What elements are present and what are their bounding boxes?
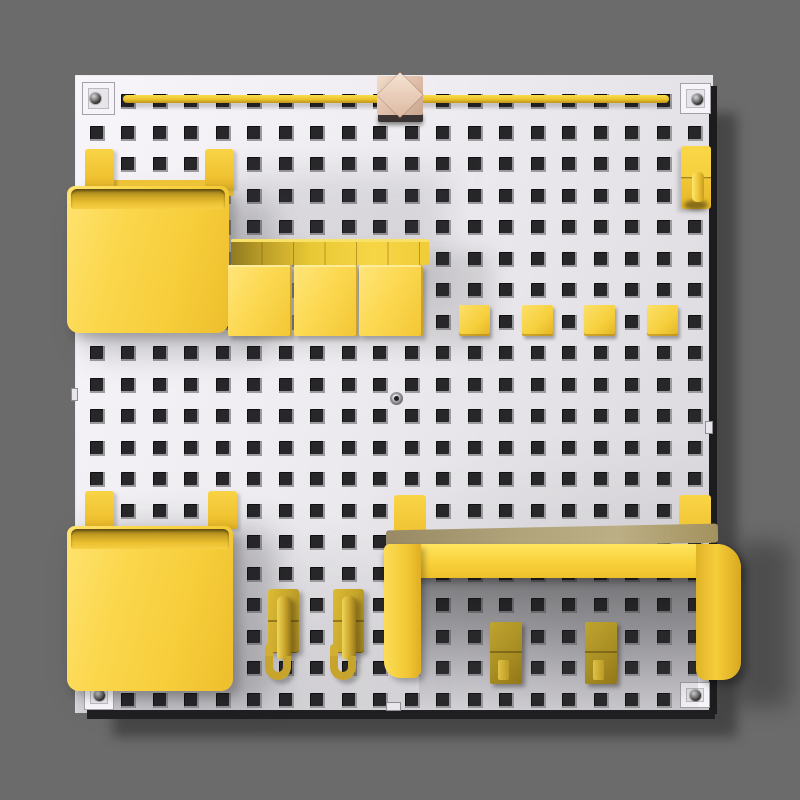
peg-hole xyxy=(594,378,609,393)
peg-hole xyxy=(562,252,577,267)
peg-hole xyxy=(184,504,199,519)
edge-notch xyxy=(705,421,713,434)
peg-hole xyxy=(279,693,294,708)
peg-hole xyxy=(247,441,262,456)
peg-hole xyxy=(216,378,231,393)
peg-hole xyxy=(121,378,136,393)
peg-hole xyxy=(468,157,483,172)
peg-hole xyxy=(373,409,388,424)
peg-hole xyxy=(247,472,262,487)
peg-hole xyxy=(247,126,262,141)
peg-hole xyxy=(531,252,546,267)
center-screw xyxy=(390,392,403,405)
peg-hole xyxy=(499,157,514,172)
peg-hole xyxy=(594,346,609,361)
peg-hole xyxy=(279,535,294,550)
peg-hole xyxy=(531,283,546,298)
peg-hole xyxy=(121,126,136,141)
peg-hole xyxy=(184,409,199,424)
peg-hole xyxy=(625,252,640,267)
peg-hole xyxy=(562,189,577,204)
peg-hole xyxy=(405,472,420,487)
peg-hole xyxy=(310,157,325,172)
bin-opening xyxy=(71,189,225,209)
peg-hole xyxy=(310,567,325,582)
peg-hole xyxy=(373,378,388,393)
peg-hole xyxy=(373,126,388,141)
peg-hole xyxy=(405,378,420,393)
bin-mount-tab xyxy=(208,491,237,529)
peg-hole xyxy=(247,157,262,172)
peg-hole xyxy=(594,252,609,267)
peg-hole xyxy=(625,504,640,519)
peg-hole xyxy=(468,472,483,487)
peg-hole xyxy=(436,409,451,424)
peg-hole xyxy=(499,346,514,361)
peg-hole xyxy=(531,157,546,172)
wood-cube-slider xyxy=(377,76,423,115)
peg-hole xyxy=(625,472,640,487)
shelf-hook-peg xyxy=(498,660,509,680)
bin-mount-tab xyxy=(85,491,114,529)
bin-opening xyxy=(71,529,229,549)
peg-hole xyxy=(562,441,577,456)
peg-hole xyxy=(531,441,546,456)
peg-hole xyxy=(121,409,136,424)
screw xyxy=(94,690,105,701)
peg-hole xyxy=(499,126,514,141)
peg-hole xyxy=(657,441,672,456)
peg-hole xyxy=(310,472,325,487)
peg-hole xyxy=(184,441,199,456)
peg-hole xyxy=(562,346,577,361)
peg-hole xyxy=(436,157,451,172)
peg-hole xyxy=(310,409,325,424)
peg-hole xyxy=(625,378,640,393)
peg-hole xyxy=(594,472,609,487)
peg-hole xyxy=(436,504,451,519)
square-peg xyxy=(459,305,490,336)
peg-hole xyxy=(90,378,105,393)
peg-hole xyxy=(625,315,640,330)
peg-hole xyxy=(342,378,357,393)
peg-hole xyxy=(279,441,294,456)
shelf-front-bar xyxy=(384,544,741,578)
edge-notch xyxy=(386,702,401,711)
peg-hole xyxy=(688,472,703,487)
shelf-hook-plate xyxy=(490,622,522,684)
peg-hole xyxy=(468,409,483,424)
peg-hole xyxy=(342,157,357,172)
peg-hole xyxy=(562,504,577,519)
j-hook-curl xyxy=(265,656,291,680)
peg-hole xyxy=(342,409,357,424)
peg-hole xyxy=(184,157,199,172)
peg-hole xyxy=(468,126,483,141)
peg-hole xyxy=(562,472,577,487)
peg-hole xyxy=(121,441,136,456)
peg-hole xyxy=(688,283,703,298)
peg-hole xyxy=(184,472,199,487)
shelf-left-leg xyxy=(384,544,421,678)
peg-hole xyxy=(279,378,294,393)
peg-hole xyxy=(657,378,672,393)
peg-hole xyxy=(279,126,294,141)
peg-hole xyxy=(310,535,325,550)
corner-screw-plate-tl xyxy=(82,82,115,115)
shelf-hook-seam xyxy=(490,651,522,653)
peg-hole xyxy=(468,504,483,519)
peg-hole xyxy=(562,378,577,393)
peg-hole xyxy=(499,378,514,393)
shelf-window-shadow xyxy=(419,574,698,726)
peg-hole xyxy=(594,189,609,204)
peg-hole xyxy=(310,661,325,676)
peg-hole xyxy=(688,409,703,424)
peg-hole xyxy=(342,441,357,456)
peg-hole xyxy=(310,441,325,456)
peg-hole xyxy=(121,472,136,487)
peg-hole xyxy=(310,598,325,613)
peg-hole xyxy=(594,441,609,456)
peg-hole xyxy=(562,315,577,330)
peg-hole xyxy=(657,472,672,487)
storage-bin-bottom-left xyxy=(67,526,233,691)
peg-hole xyxy=(688,220,703,235)
tile-rack xyxy=(231,239,429,265)
peg-hole xyxy=(499,252,514,267)
bin-mount-tab xyxy=(85,149,114,189)
peg-hole xyxy=(153,409,168,424)
peg-hole xyxy=(216,126,231,141)
peg-hole xyxy=(499,409,514,424)
peg-hole xyxy=(531,472,546,487)
square-peg xyxy=(584,305,615,336)
peg-hole xyxy=(342,504,357,519)
peg-hole xyxy=(216,441,231,456)
peg-hole xyxy=(625,283,640,298)
leaning-tile xyxy=(294,265,358,336)
storage-bin-top-left xyxy=(67,186,229,333)
peg-hole xyxy=(625,441,640,456)
shelf-hook-seam xyxy=(585,651,617,653)
peg-hole xyxy=(153,157,168,172)
peg-hole xyxy=(688,126,703,141)
peg-hole xyxy=(184,126,199,141)
peg-hole xyxy=(153,441,168,456)
peg-hole xyxy=(499,504,514,519)
peg-hole xyxy=(531,378,546,393)
peg-hole xyxy=(436,126,451,141)
peg-hole xyxy=(184,378,199,393)
peg-hole xyxy=(310,693,325,708)
shelf-right-leg xyxy=(696,544,741,680)
peg-hole xyxy=(499,220,514,235)
peg-hole xyxy=(310,378,325,393)
peg-hole xyxy=(688,346,703,361)
peg-hole xyxy=(562,126,577,141)
screw xyxy=(692,94,703,105)
pegboard-scene xyxy=(0,0,800,800)
peg-hole xyxy=(657,126,672,141)
peg-hole xyxy=(405,409,420,424)
peg-hole xyxy=(436,378,451,393)
peg-hole xyxy=(499,283,514,298)
peg-hole xyxy=(531,504,546,519)
peg-hole xyxy=(121,157,136,172)
peg-hole xyxy=(247,378,262,393)
peg-hole xyxy=(594,126,609,141)
peg-hole xyxy=(625,157,640,172)
peg-hole xyxy=(499,315,514,330)
screw xyxy=(90,93,101,104)
peg-hole xyxy=(468,441,483,456)
peg-hole xyxy=(594,283,609,298)
peg-hole xyxy=(657,252,672,267)
peg-hole xyxy=(279,409,294,424)
peg-hole xyxy=(688,441,703,456)
peg-hole xyxy=(342,346,357,361)
peg-hole xyxy=(342,472,357,487)
peg-hole xyxy=(499,472,514,487)
peg-hole xyxy=(121,504,136,519)
peg-hole xyxy=(279,157,294,172)
peg-hole xyxy=(436,346,451,361)
peg-hole xyxy=(247,504,262,519)
peg-hole xyxy=(216,472,231,487)
j-hook-stem xyxy=(277,596,291,659)
peg-hole xyxy=(153,504,168,519)
peg-hole xyxy=(499,441,514,456)
square-peg xyxy=(647,305,678,336)
peg-hole xyxy=(310,346,325,361)
peg-hole xyxy=(90,409,105,424)
pegboard xyxy=(75,75,713,713)
peg-hole xyxy=(342,126,357,141)
peg-hole xyxy=(562,220,577,235)
peg-hole xyxy=(657,283,672,298)
peg-hole xyxy=(625,126,640,141)
peg-hole xyxy=(373,441,388,456)
peg-hole xyxy=(625,346,640,361)
peg-hole xyxy=(531,409,546,424)
peg-hole xyxy=(436,441,451,456)
peg-hole xyxy=(342,535,357,550)
peg-hole xyxy=(562,157,577,172)
peg-hole xyxy=(405,126,420,141)
peg-hole xyxy=(279,346,294,361)
peg-hole xyxy=(657,157,672,172)
peg-hole xyxy=(279,472,294,487)
single-hook-peg xyxy=(692,172,704,202)
edge-notch xyxy=(71,388,78,401)
leaning-tile xyxy=(228,265,292,336)
peg-hole xyxy=(499,189,514,204)
peg-hole xyxy=(625,220,640,235)
peg-hole xyxy=(310,126,325,141)
peg-hole xyxy=(531,189,546,204)
peg-hole xyxy=(468,189,483,204)
peg-hole xyxy=(310,504,325,519)
peg-hole xyxy=(405,157,420,172)
peg-hole xyxy=(247,409,262,424)
peg-hole xyxy=(373,472,388,487)
peg-hole xyxy=(531,346,546,361)
peg-hole xyxy=(373,504,388,519)
peg-hole xyxy=(436,472,451,487)
leaning-tile xyxy=(359,265,423,336)
peg-hole xyxy=(531,220,546,235)
peg-hole xyxy=(90,126,105,141)
peg-hole xyxy=(279,567,294,582)
peg-hole xyxy=(373,157,388,172)
j-hook-stem xyxy=(342,596,356,659)
j-hook-curl xyxy=(330,656,356,680)
peg-hole xyxy=(562,283,577,298)
peg-hole xyxy=(657,189,672,204)
peg-hole xyxy=(90,472,105,487)
peg-hole xyxy=(373,346,388,361)
shelf-wall-shadow xyxy=(733,542,791,707)
shelf-hook-peg xyxy=(593,660,604,680)
peg-hole xyxy=(657,409,672,424)
peg-hole xyxy=(531,126,546,141)
peg-hole xyxy=(342,567,357,582)
peg-hole xyxy=(468,346,483,361)
peg-hole xyxy=(688,252,703,267)
peg-hole xyxy=(342,693,357,708)
peg-hole xyxy=(562,409,577,424)
peg-hole xyxy=(468,378,483,393)
peg-hole xyxy=(153,126,168,141)
peg-hole xyxy=(594,504,609,519)
peg-hole xyxy=(657,220,672,235)
peg-hole xyxy=(405,346,420,361)
peg-hole xyxy=(657,504,672,519)
peg-hole xyxy=(468,220,483,235)
corner-screw-plate-tr xyxy=(680,83,711,114)
peg-hole xyxy=(594,409,609,424)
peg-hole xyxy=(310,630,325,645)
peg-hole xyxy=(216,409,231,424)
peg-hole xyxy=(279,504,294,519)
peg-hole xyxy=(594,220,609,235)
peg-hole xyxy=(153,378,168,393)
peg-hole xyxy=(688,378,703,393)
peg-hole xyxy=(594,157,609,172)
peg-hole xyxy=(405,693,420,708)
peg-hole xyxy=(625,189,640,204)
peg-hole xyxy=(90,441,105,456)
peg-hole xyxy=(688,315,703,330)
bin-mount-tab xyxy=(205,149,234,189)
peg-hole xyxy=(657,346,672,361)
peg-hole xyxy=(625,409,640,424)
peg-hole xyxy=(153,472,168,487)
peg-hole xyxy=(405,441,420,456)
shelf-hook-plate xyxy=(585,622,617,684)
square-peg xyxy=(522,305,553,336)
